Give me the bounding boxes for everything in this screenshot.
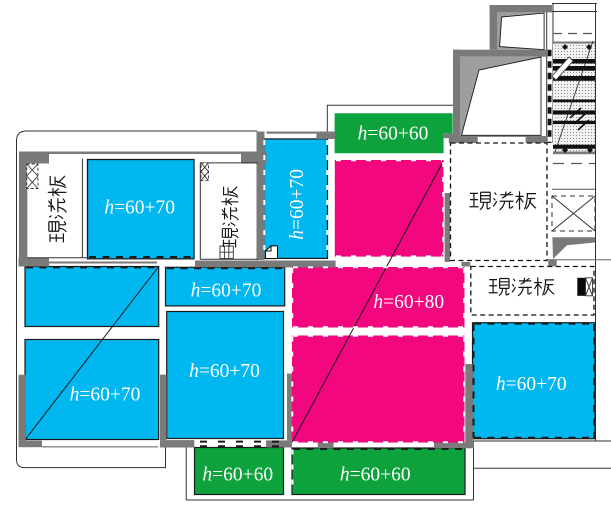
svg-text:h=60+60: h=60+60: [202, 464, 273, 485]
svg-text:h=60+80: h=60+80: [373, 292, 444, 313]
svg-text:h=60+60: h=60+60: [358, 124, 429, 145]
svg-text:h=60+70: h=60+70: [287, 169, 308, 240]
svg-text:h=60+70: h=60+70: [70, 385, 141, 406]
svg-text:h=60+70: h=60+70: [104, 197, 175, 218]
svg-text:h=60+70: h=60+70: [189, 361, 260, 382]
svg-text:h=60+60: h=60+60: [340, 464, 411, 485]
svg-text:h=60+70: h=60+70: [496, 374, 567, 395]
svg-text:h=60+70: h=60+70: [191, 280, 262, 301]
